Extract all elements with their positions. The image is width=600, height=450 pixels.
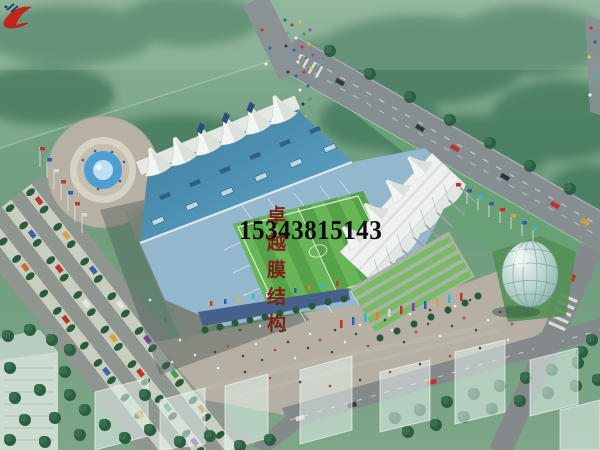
rendered-scene	[0, 0, 600, 450]
glass-dome-pavilion	[492, 236, 576, 322]
residential-building	[0, 330, 58, 450]
stadium-aerial-rendering: 卓越膜结构 15343815143	[0, 0, 600, 450]
